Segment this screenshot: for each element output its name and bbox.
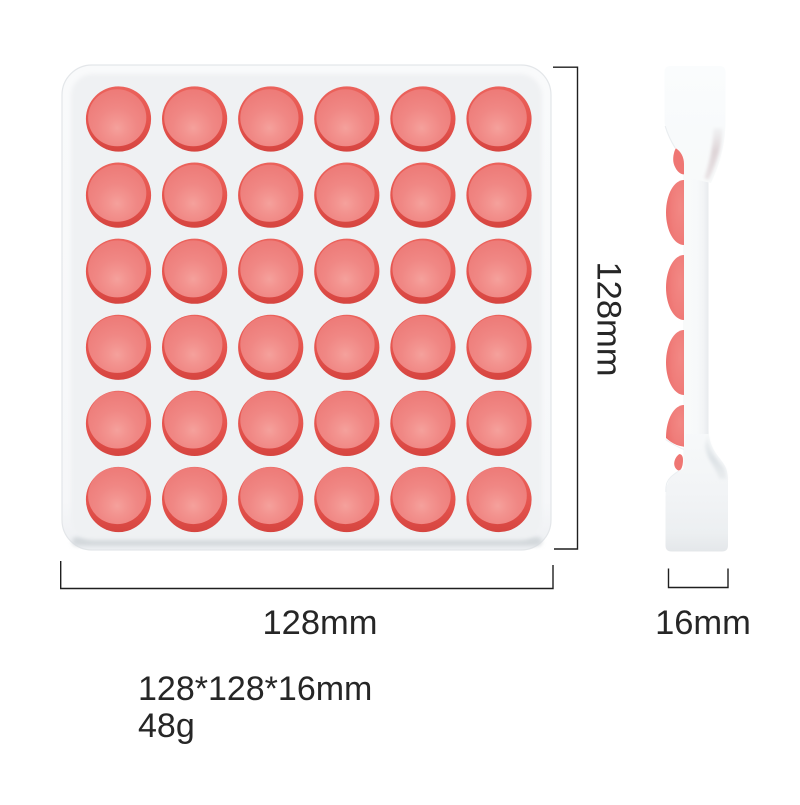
svg-text:16mm: 16mm [655,604,751,642]
svg-text:128*128*16mm: 128*128*16mm [138,670,372,708]
svg-text:48g: 48g [138,707,195,745]
svg-text:128mm: 128mm [590,261,628,376]
svg-text:128mm: 128mm [262,604,377,642]
